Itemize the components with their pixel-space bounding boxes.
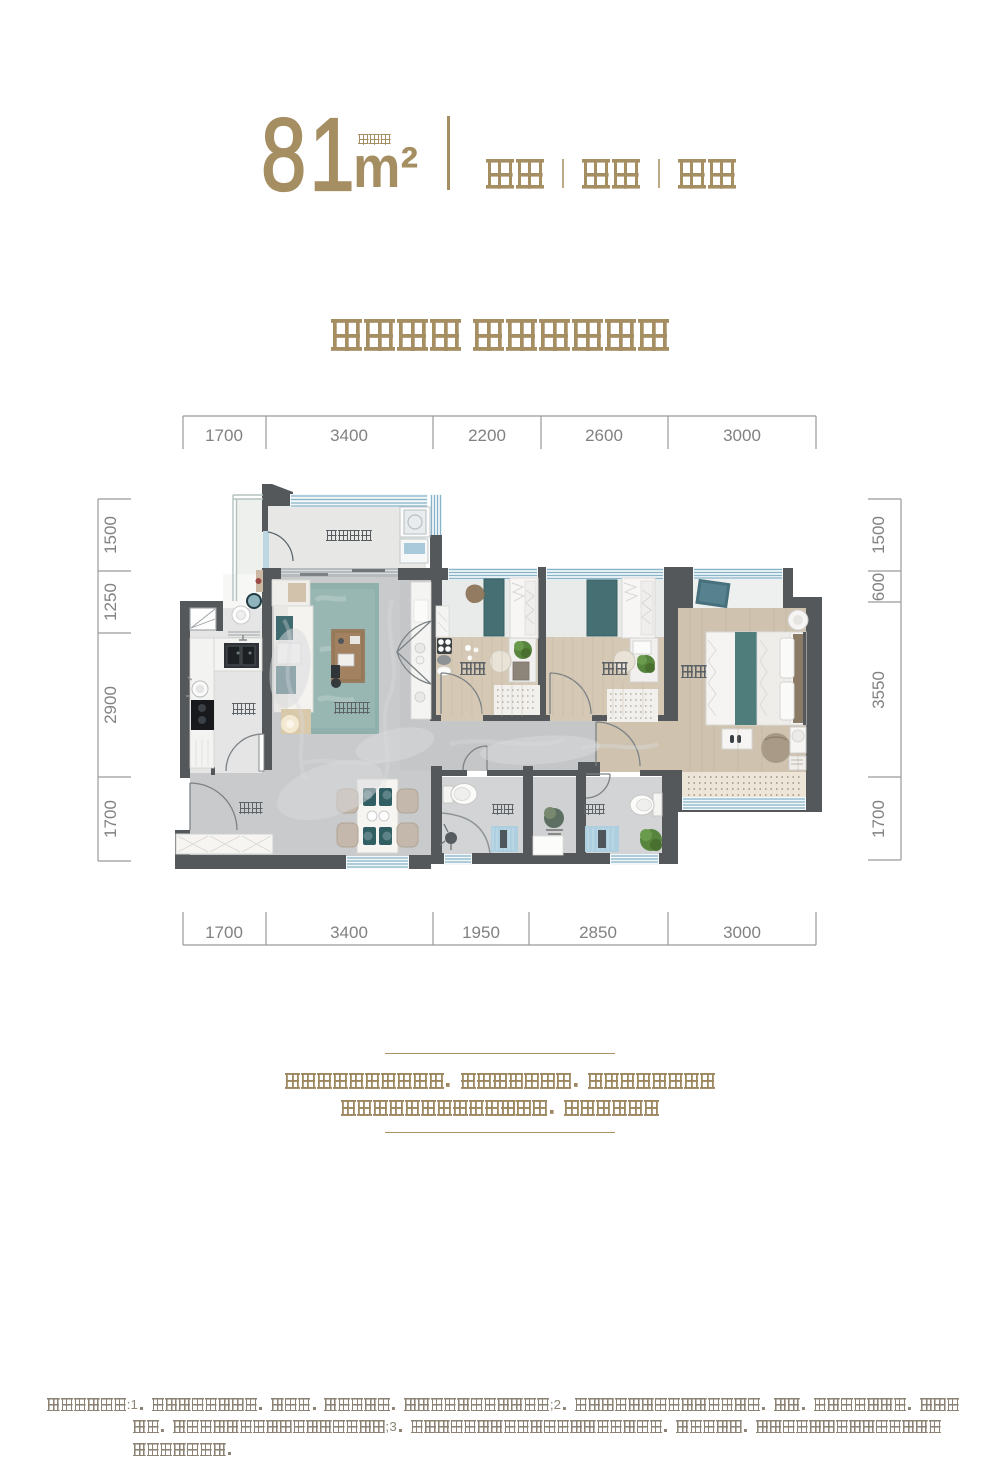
svg-text:2600: 2600 [585, 426, 623, 445]
svg-text:2900: 2900 [101, 686, 120, 724]
svg-text:1700: 1700 [205, 426, 243, 445]
svg-text:1700: 1700 [205, 923, 243, 942]
svg-text:3000: 3000 [723, 923, 761, 942]
svg-text:1500: 1500 [869, 516, 888, 554]
svg-text:1250: 1250 [101, 583, 120, 621]
svg-text:600: 600 [869, 573, 888, 601]
svg-text:1500: 1500 [101, 516, 120, 554]
svg-text:2200: 2200 [468, 426, 506, 445]
svg-text:3550: 3550 [869, 671, 888, 709]
svg-text:3000: 3000 [723, 426, 761, 445]
svg-text:1950: 1950 [462, 923, 500, 942]
svg-text:1700: 1700 [869, 800, 888, 838]
svg-text:3400: 3400 [330, 923, 368, 942]
svg-text:1700: 1700 [101, 800, 120, 838]
svg-text:2850: 2850 [579, 923, 617, 942]
svg-text:3400: 3400 [330, 426, 368, 445]
